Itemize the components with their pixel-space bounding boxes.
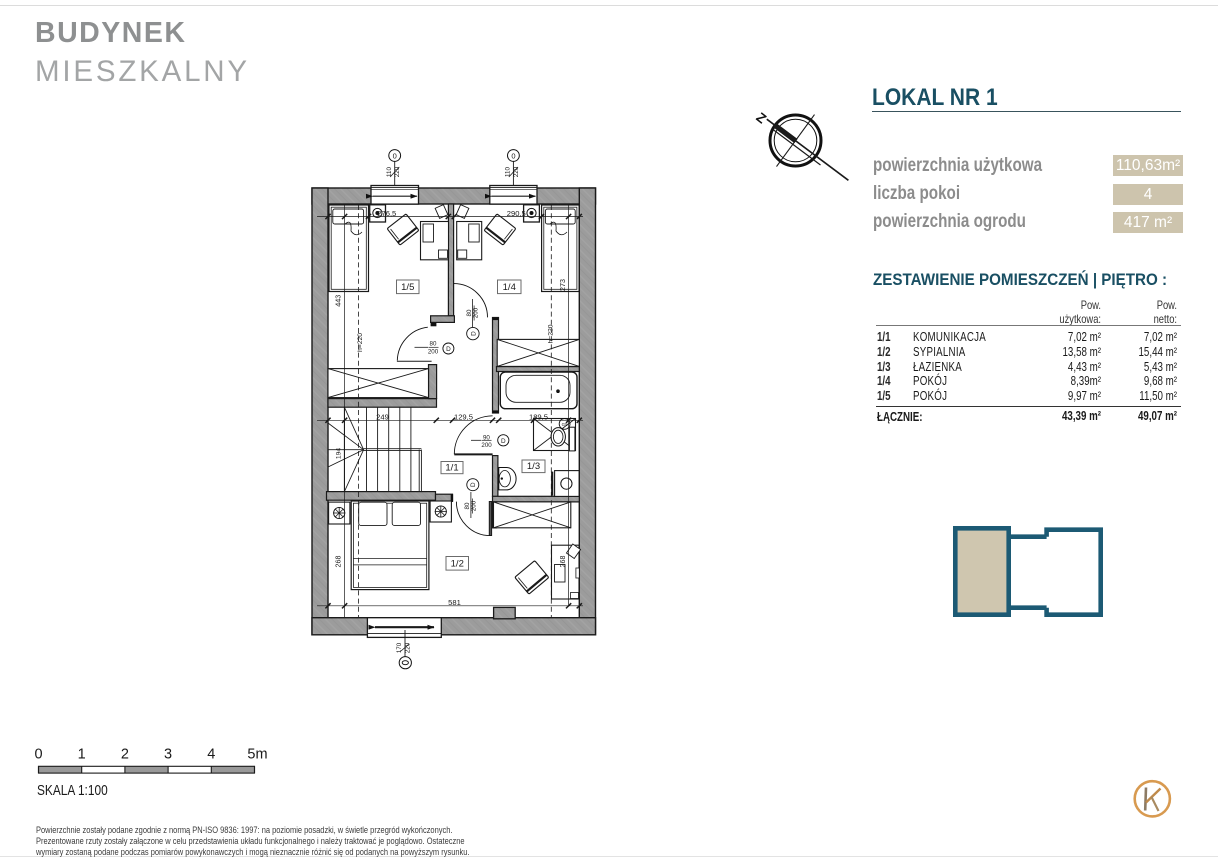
- svg-text:170: 170: [396, 642, 403, 653]
- svg-text:200: 200: [481, 442, 492, 449]
- svg-text:290,5: 290,5: [507, 209, 526, 218]
- svg-text:581: 581: [448, 598, 461, 607]
- svg-text:1/2: 1/2: [451, 559, 464, 570]
- svg-text:273: 273: [558, 279, 567, 291]
- svg-text:3: 3: [164, 747, 172, 763]
- svg-text:h=220: h=220: [357, 333, 364, 352]
- svg-text:80: 80: [430, 341, 437, 348]
- svg-text:194: 194: [335, 448, 342, 460]
- svg-text:1/4: 1/4: [503, 282, 516, 293]
- svg-text:0: 0: [34, 747, 42, 763]
- svg-text:D: D: [470, 331, 477, 336]
- svg-text:D: D: [470, 482, 477, 487]
- svg-text:h=220: h=220: [547, 324, 554, 343]
- svg-text:1: 1: [78, 747, 86, 763]
- svg-text:220: 220: [404, 642, 411, 653]
- svg-text:276,5: 276,5: [377, 209, 396, 218]
- svg-text:200: 200: [471, 500, 478, 511]
- svg-text:443: 443: [334, 295, 343, 307]
- svg-text:4: 4: [207, 747, 215, 763]
- svg-text:0: 0: [511, 151, 515, 160]
- svg-text:1/1: 1/1: [445, 462, 458, 473]
- svg-text:0: 0: [393, 151, 397, 160]
- svg-text:129,5: 129,5: [454, 413, 473, 422]
- svg-text:268: 268: [334, 556, 343, 568]
- svg-text:1/5: 1/5: [401, 282, 414, 293]
- svg-text:189,5: 189,5: [529, 413, 548, 422]
- svg-text:200: 200: [428, 349, 439, 356]
- svg-text:Z: Z: [753, 110, 769, 127]
- svg-text:SKALA 1:100: SKALA 1:100: [37, 782, 108, 798]
- svg-text:2: 2: [121, 747, 129, 763]
- svg-text:1/3: 1/3: [527, 461, 540, 472]
- svg-text:5m: 5m: [247, 747, 267, 763]
- svg-text:D: D: [501, 438, 506, 445]
- svg-text:200: 200: [472, 307, 479, 318]
- svg-text:D: D: [446, 346, 451, 353]
- svg-text:268: 268: [558, 556, 567, 568]
- svg-text:249: 249: [376, 413, 389, 422]
